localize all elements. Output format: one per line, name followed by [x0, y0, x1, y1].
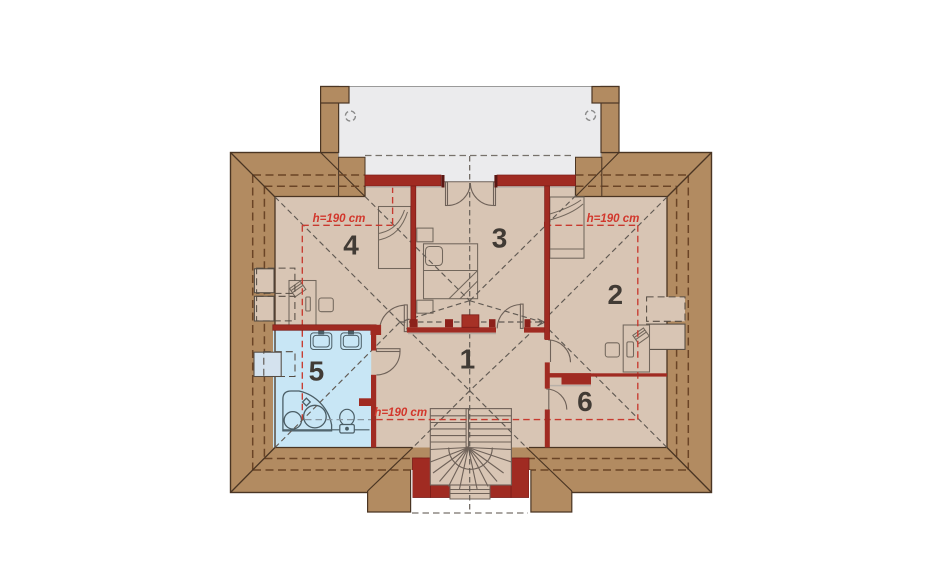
svg-text:1: 1 [460, 344, 476, 375]
svg-text:5: 5 [309, 356, 325, 387]
svg-text:h=190 cm: h=190 cm [587, 213, 640, 225]
svg-text:3: 3 [492, 223, 508, 254]
svg-text:h=190 cm: h=190 cm [374, 407, 427, 419]
svg-text:h=190 cm: h=190 cm [313, 213, 366, 225]
svg-text:2: 2 [608, 279, 624, 310]
svg-text:6: 6 [577, 386, 593, 417]
svg-text:4: 4 [343, 230, 359, 261]
